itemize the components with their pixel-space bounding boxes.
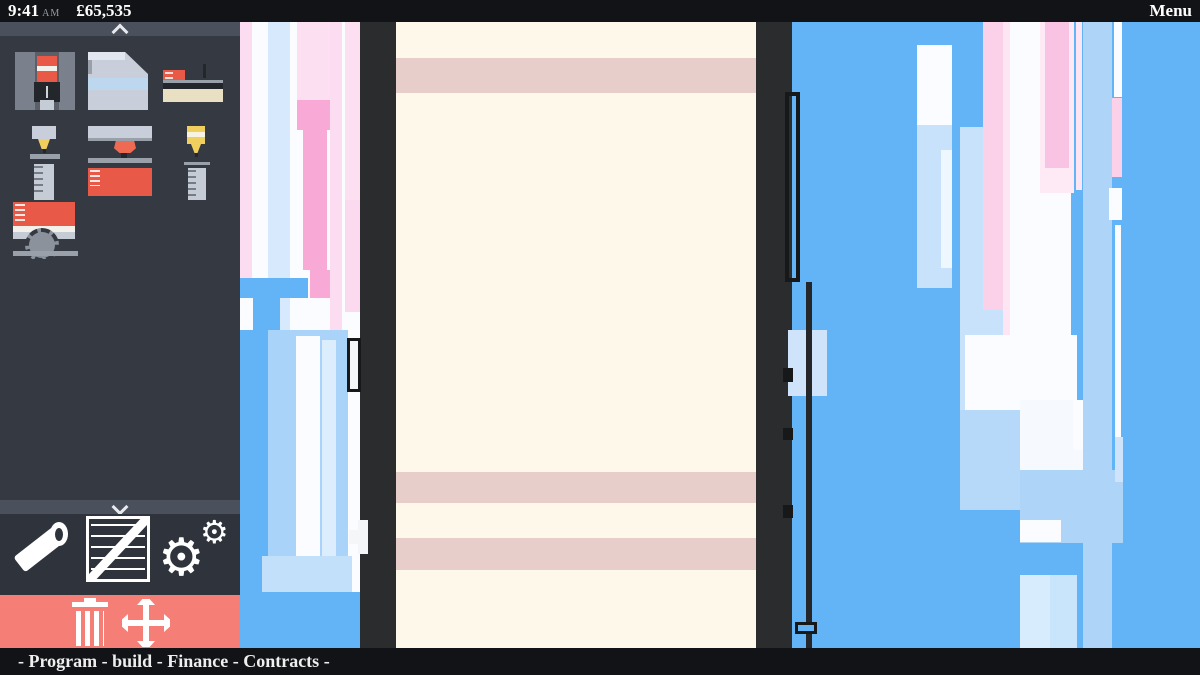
floor-stripe-1 (396, 58, 756, 93)
nav-item-program[interactable]: Program (29, 651, 98, 671)
icon-part (191, 144, 201, 153)
chevron-up-icon (112, 24, 129, 41)
demolish-button[interactable] (72, 598, 108, 648)
icon-part (88, 126, 152, 138)
left-blue-bottom (240, 592, 360, 652)
top-status-bar: 9:41 AM £65,535 Menu (0, 0, 1200, 22)
icon-part (188, 170, 196, 196)
machine-hopper[interactable] (88, 52, 148, 110)
icon-part (40, 100, 54, 110)
build-sidebar: ⚙ ⚙ (0, 22, 240, 652)
icon-part (184, 162, 210, 165)
icon-part (43, 149, 46, 153)
icon-part (88, 78, 148, 90)
cluster-step-left (960, 410, 1020, 510)
icon-part (37, 66, 57, 71)
action-bar (0, 595, 240, 652)
wall-handle-h (349, 530, 359, 544)
pink-strip (1045, 22, 1069, 168)
nav-item-contracts[interactable]: Contracts (243, 651, 319, 671)
chevron-down-icon (112, 499, 129, 516)
icon-part (137, 599, 155, 605)
icon-part (88, 158, 152, 163)
icon-part (122, 614, 128, 632)
menu-button[interactable]: Menu (1150, 1, 1200, 21)
left-stripe-palepink-top (297, 22, 330, 100)
white-block-sm (1109, 188, 1122, 220)
icon-part (30, 154, 60, 159)
wall-pole (806, 282, 812, 652)
pink-seg (1112, 98, 1122, 177)
icon-part (13, 251, 78, 256)
icon-part (187, 132, 205, 137)
machine-circular-saw[interactable] (13, 202, 78, 259)
icon-part (88, 52, 125, 60)
wall-handle-v (358, 520, 368, 554)
scroll-down-button[interactable] (0, 500, 240, 514)
left-stripe-pink-edge (240, 22, 252, 290)
tower-inner-light (941, 150, 952, 268)
icon-part (163, 89, 223, 102)
nav-item-build[interactable]: build (112, 651, 152, 671)
move-button[interactable] (122, 599, 170, 647)
wall-door (347, 338, 361, 392)
pole-nub-2 (783, 428, 793, 440)
icon-part (90, 170, 100, 186)
clock-time: 9:41 (8, 1, 39, 21)
pole-crate (795, 622, 817, 634)
thin-white-2 (1073, 400, 1083, 450)
machine-lathe[interactable] (163, 64, 223, 102)
gear-icon: ⚙ (158, 532, 205, 584)
bottom-nav: - Program - build - Finance - Contracts … (0, 648, 1200, 675)
icon-part (143, 603, 149, 643)
icon-part (72, 602, 108, 607)
crate-tool-button[interactable] (86, 516, 150, 582)
icon-part (76, 611, 104, 646)
left-block-pink (297, 100, 330, 130)
left-col-pink (303, 130, 327, 270)
left-col-palepink-low (345, 200, 360, 312)
icon-part (38, 139, 50, 149)
icon-part (88, 138, 152, 141)
icon-part (46, 86, 48, 98)
pole-nub-3 (783, 505, 793, 518)
cluster-white-block (1020, 520, 1061, 542)
icon-part (34, 166, 43, 196)
left-block-pink-2 (310, 270, 330, 298)
scroll-up-button[interactable] (0, 22, 240, 36)
icon-part (137, 641, 155, 647)
icon-part (32, 126, 56, 139)
left-wall (360, 22, 396, 652)
floor-stripe-3 (396, 538, 756, 570)
pipe-tool-button[interactable] (12, 520, 72, 576)
machine-small-drill[interactable] (30, 124, 62, 202)
icon-part (15, 204, 25, 222)
icon-part (203, 64, 206, 78)
icon-part (114, 141, 136, 153)
clock-meridiem: AM (42, 8, 60, 19)
icon-part (164, 614, 170, 632)
machine-injector[interactable] (184, 124, 210, 202)
game-window: 9:41 AM £65,535 Menu (0, 0, 1200, 675)
icon-part (88, 60, 92, 74)
machine-wide-press[interactable] (88, 124, 152, 198)
wall-bracket (785, 92, 800, 282)
col-lightblue-tall (1083, 22, 1112, 652)
paleblue-thin (1115, 437, 1123, 482)
pole-nub-1 (783, 368, 793, 382)
bottom-col-inner (1050, 575, 1077, 652)
money-balance: £65,535 (76, 1, 131, 21)
crane-arm (240, 278, 308, 298)
floor-stripe-2 (396, 472, 756, 503)
settings-gears-button[interactable]: ⚙ ⚙ (158, 514, 232, 588)
icon-part (195, 153, 198, 157)
tower-white-top (917, 45, 952, 125)
nav-item-finance[interactable]: Finance (167, 651, 228, 671)
palepink-thin-2 (1076, 22, 1082, 190)
thin-white-top (1114, 22, 1122, 97)
cluster-white-band (965, 335, 1077, 410)
gear-small-icon: ⚙ (200, 516, 229, 548)
tool-bar: ⚙ ⚙ (0, 514, 240, 595)
status-left: 9:41 AM £65,535 (0, 1, 132, 21)
machine-vertical-mill[interactable] (15, 52, 75, 110)
icon-part (55, 528, 63, 541)
